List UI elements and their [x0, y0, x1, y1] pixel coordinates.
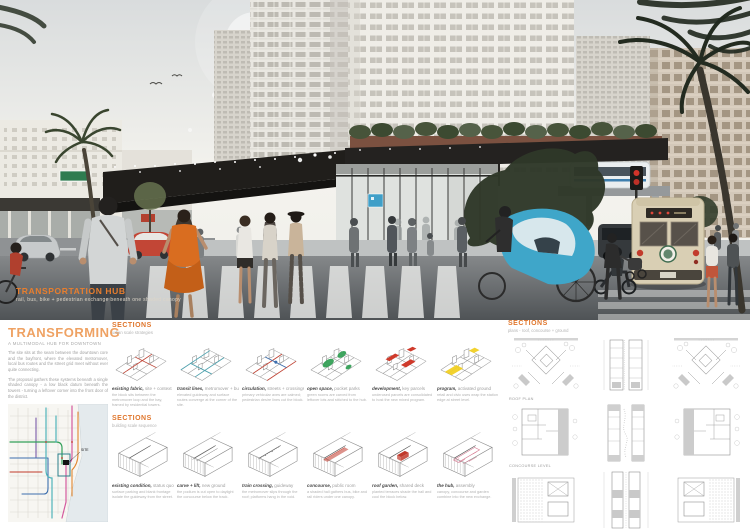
diagram-description: planted terraces shade the hall and cool… — [372, 490, 434, 500]
plan-cell — [508, 403, 586, 463]
diagram-description: primary vehicular axes are calmed; pedes… — [242, 393, 304, 403]
plan-row-label: CONCOURSE LEVEL — [509, 464, 746, 468]
diagram-description: surface parking and blank frontage isola… — [112, 490, 174, 500]
diagram-caption: development, key parcels — [372, 386, 434, 392]
hero-subtitle: rail, bus, bike + pedestrian exchange be… — [16, 297, 181, 303]
diagram-caption: existing condition, status quo — [112, 483, 174, 489]
diagram-caption: open space, pocket parks — [307, 386, 369, 392]
diagram-description: elevated guideway and surface routes con… — [177, 393, 239, 408]
plan-cell — [588, 336, 666, 396]
floor-plan — [508, 470, 584, 530]
diagram-cell: concourse, public room a shaded hall gat… — [307, 431, 369, 500]
floor-plan — [668, 403, 744, 463]
diagram-description: the podium is cut open to daylight the c… — [177, 490, 239, 500]
diagram-block-2: SECTIONS building scale sequence existin… — [112, 415, 504, 500]
hero-caption: TRANSPORTATION HUB rail, bus, bike + ped… — [16, 286, 181, 303]
plan-row — [508, 336, 746, 396]
plan-cell — [668, 336, 746, 396]
diagram-caption: circulation, streets + crossings — [242, 386, 304, 392]
floor-plan — [508, 403, 584, 463]
axon-diagram — [112, 338, 170, 384]
board-title: TRANSFORMING — [8, 325, 108, 340]
floor-plan — [508, 336, 584, 396]
transit-map: SITE — [8, 404, 108, 522]
map-site-marker — [63, 460, 69, 465]
diagram-caption: carve + lift, new ground — [177, 483, 239, 489]
plan-cell — [508, 470, 586, 530]
diagram-caption: train crossing, guideway — [242, 483, 304, 489]
diagram-caption: roof garden, shared deck — [372, 483, 434, 489]
plan-row — [508, 403, 746, 463]
diagram-description: the block sits between the metromover lo… — [112, 393, 174, 408]
diagram-block-1-header: SECTIONS — [112, 322, 504, 329]
axon-diagram — [177, 338, 235, 384]
diagram-cell: existing condition, status quo surface p… — [112, 431, 174, 500]
plan-cell — [668, 403, 746, 463]
diagram-block-2-header: SECTIONS — [112, 415, 504, 422]
lower-panel: TRANSFORMING A MULTIMODAL HUB FOR DOWNTO… — [0, 320, 750, 530]
hero-rendering: TRANSPORTATION HUB rail, bus, bike + ped… — [0, 0, 750, 320]
diagram-block-1: SECTIONS urban scale strategies existing… — [112, 322, 504, 408]
diagram-description: underused parcels are consolidated to ho… — [372, 393, 434, 403]
street-tree — [134, 182, 166, 210]
floor-plan — [668, 336, 744, 396]
hero-scene — [0, 0, 750, 320]
diagram-cell: existing fabric, site + context the bloc… — [112, 338, 174, 408]
diagram-cell: open space, pocket parks green rooms are… — [307, 338, 369, 408]
diagram-caption: transit lines, metromover + bus — [177, 386, 239, 392]
diagram-description: canopy, concourse and garden combine int… — [437, 490, 499, 500]
diagrams-column: SECTIONS urban scale strategies existing… — [112, 322, 504, 500]
diagram-caption: the hub, assembly — [437, 483, 499, 489]
plan-cell — [588, 403, 666, 463]
axon-diagram — [437, 431, 495, 481]
axon-diagram — [372, 431, 430, 481]
intro-column: TRANSFORMING A MULTIMODAL HUB FOR DOWNTO… — [8, 325, 108, 530]
diagram-grid-1: existing fabric, site + context the bloc… — [112, 338, 504, 408]
floor-plan — [668, 470, 744, 530]
diagram-cell: train crossing, guideway the metromover … — [242, 431, 304, 500]
axon-diagram — [242, 338, 300, 384]
diagram-grid-2: existing condition, status quo surface p… — [112, 431, 504, 500]
axon-diagram — [372, 338, 430, 384]
hero-title: TRANSPORTATION HUB — [16, 286, 181, 296]
plan-row-label: ROOF PLAN — [509, 397, 746, 401]
plan-cell — [508, 336, 586, 396]
diagram-description: the metromover slips through the roof; p… — [242, 490, 304, 500]
map-site-label: SITE — [81, 448, 89, 452]
plans-header: SECTIONS — [508, 320, 746, 327]
diagram-caption: existing fabric, site + context — [112, 386, 174, 392]
axon-diagram — [307, 431, 365, 481]
diagram-cell: the hub, assembly canopy, concourse and … — [437, 431, 499, 500]
diagram-cell: roof garden, shared deck planted terrace… — [372, 431, 434, 500]
plan-cell — [668, 470, 746, 530]
floor-plan — [588, 403, 664, 463]
diagram-description: a shaded hall gathers bus, bike and rail… — [307, 490, 369, 500]
board-subtitle: A MULTIMODAL HUB FOR DOWNTOWN — [8, 341, 108, 346]
intro-paragraph-2: The proposal gathers these systems benea… — [8, 377, 108, 400]
diagram-cell: carve + lift, new ground the podium is c… — [177, 431, 239, 500]
plan-row — [508, 470, 746, 530]
diagram-block-2-subheader: building scale sequence — [112, 423, 504, 428]
axon-diagram — [177, 431, 235, 481]
intro-paragraph-1: The site sits at the seam between the do… — [8, 350, 108, 373]
plans-column: SECTIONS plans - roof, concourse + groun… — [508, 320, 746, 530]
axon-diagram — [307, 338, 365, 384]
diagram-cell: program, activated ground retail and civ… — [437, 338, 499, 408]
axon-diagram — [242, 431, 300, 481]
transit-sign — [368, 194, 383, 207]
diagram-caption: program, activated ground — [437, 386, 499, 392]
street-name-sign — [60, 171, 90, 181]
diagram-description: retail and civic uses wrap the station e… — [437, 393, 499, 403]
plans-subheader: plans - roof, concourse + ground — [508, 328, 746, 333]
diagram-cell: circulation, streets + crossings primary… — [242, 338, 304, 408]
diagram-cell: transit lines, metromover + bus elevated… — [177, 338, 239, 408]
trolley-bus — [630, 198, 706, 290]
diagram-cell: development, key parcels underused parce… — [372, 338, 434, 408]
diagram-caption: concourse, public room — [307, 483, 369, 489]
plans-grid: ROOF PLAN CONCOURSE LEVEL GROUND LEVEL — [508, 336, 746, 530]
red-awning — [141, 214, 155, 222]
axon-diagram — [437, 338, 495, 384]
axon-diagram — [112, 431, 170, 481]
floor-plan — [588, 336, 664, 396]
diagram-block-1-subheader: urban scale strategies — [112, 330, 504, 335]
plan-cell — [588, 470, 666, 530]
diagram-description: green rooms are carved from leftover lot… — [307, 393, 369, 403]
presentation-board: TRANSPORTATION HUB rail, bus, bike + ped… — [0, 0, 750, 530]
transit-map-wrap: SITE — [8, 404, 108, 527]
floor-plan — [588, 470, 664, 530]
